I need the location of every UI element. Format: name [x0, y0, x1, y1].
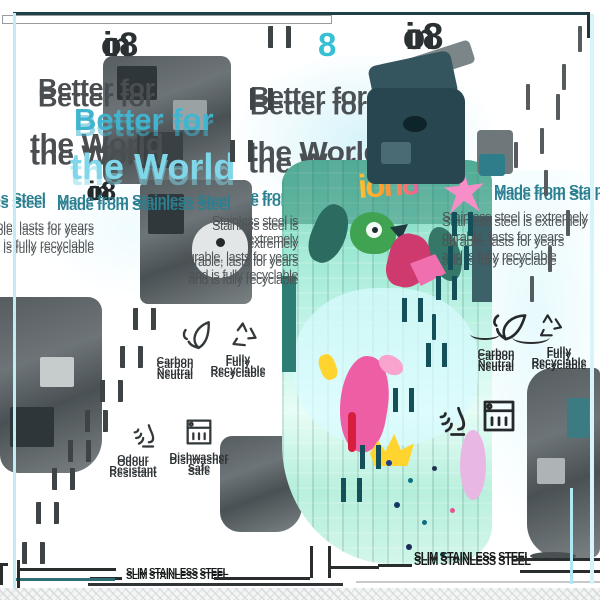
description-line: durable, lasts for years [180, 253, 298, 271]
brand-logo-ghost-right: ion8 [405, 16, 431, 58]
glitch-dash [36, 502, 59, 524]
description-line: Stainless steel is extremely [180, 217, 298, 253]
glitch-dash [530, 276, 534, 302]
product-image: Better for the World Made from Stainless… [0, 0, 600, 600]
glitch-dash [268, 26, 291, 48]
bottle-dot-3 [432, 466, 437, 471]
feature-label-recyclable: Fully Recyclable [526, 350, 592, 373]
arc-mark [470, 328, 500, 340]
banner-line-long [88, 583, 343, 586]
glitch-dash [100, 380, 123, 402]
glitch-dash [230, 140, 253, 162]
dishwasher-icon [182, 414, 216, 450]
banner-line [516, 558, 600, 561]
ghost-bottle-light2 [40, 357, 74, 387]
glitch-dash [85, 410, 108, 432]
banner-text-left: SLIM STAINLESS STEEL [126, 570, 228, 582]
leaf-icon [176, 316, 219, 357]
glitch-dash [52, 468, 75, 490]
glitch-dash [526, 84, 530, 110]
ghost-bottle-teal-bit [567, 398, 589, 438]
feature-label-carbon: Carbon Neutral [466, 352, 526, 375]
glitch-dash [544, 170, 548, 196]
banner-text-right: SLIM STAINLESS STEEL [414, 556, 530, 568]
subtitle-edge-fragment: Made from Stainless Steel [0, 196, 45, 212]
banner-line-teal [15, 578, 115, 581]
cap-highlight [381, 142, 411, 164]
banner-line-grey [356, 581, 600, 583]
ghost-bottle-shade4 [10, 407, 54, 447]
glitch-dash [133, 308, 156, 330]
cap-body [367, 88, 465, 184]
bottle-dot-7 [406, 544, 412, 550]
banner-line [214, 577, 310, 580]
bottle-dot-4 [394, 502, 400, 508]
glitch-dash [250, 88, 273, 110]
feature-label-odour-ghost: Odour Resistant [102, 458, 164, 481]
banner-line [378, 564, 412, 567]
corner-mark [0, 563, 3, 585]
nose-icon [129, 420, 163, 456]
corner-mark [328, 546, 331, 578]
corner-mark [331, 566, 379, 569]
bottle-dot-5 [422, 520, 427, 525]
recycle-icon [224, 316, 261, 353]
glitch-dash [22, 542, 45, 564]
corner-mark [20, 568, 116, 571]
glitch-dash [448, 246, 469, 270]
frame-right-cyan [590, 14, 594, 584]
ghost-bottle-light3 [537, 458, 565, 484]
glitch-dash [402, 298, 423, 322]
bottle-dot-2 [408, 478, 413, 483]
main-title-line1: Better for [74, 102, 214, 138]
bottle-teal-edge [282, 276, 296, 372]
glitch-dash [452, 212, 473, 236]
glitch-dash [393, 388, 414, 412]
feature-label-carbon-ghost: Carbon Neutral [146, 360, 204, 383]
glitch-dash [540, 128, 544, 154]
glitch-dash [341, 478, 362, 502]
brand-logo-ghost-left: ion8 [103, 26, 127, 65]
feature-label-recyclable-ghost: Fully Recyclable [206, 358, 270, 381]
bottle-cap [345, 46, 525, 186]
glitch-dash [566, 210, 570, 236]
frame-right-tick [587, 12, 590, 38]
nose-icon [434, 402, 476, 446]
corner-mark [17, 560, 20, 588]
frame-left-cyan [13, 13, 16, 588]
glitch-dash [562, 64, 566, 90]
cap-side-teal [479, 154, 505, 176]
glitch-dash [556, 94, 560, 120]
bottle-dot-6 [450, 508, 455, 513]
glitch-dash [432, 314, 436, 340]
main-title-line2: the World [70, 146, 235, 188]
description-center: Stainless steel is extremely durable, la… [180, 217, 298, 290]
description-line: and is fully recyclable [180, 271, 298, 289]
arc-mark [512, 330, 550, 344]
bottom-hatch-strip [0, 588, 600, 600]
frame-inner-box [2, 15, 332, 24]
parrot-pupil [372, 227, 378, 233]
glitch-dash [436, 276, 457, 300]
glitch-dash [426, 343, 447, 367]
bottle-dot-1 [386, 460, 392, 466]
glitch-dash [120, 346, 143, 368]
dishwasher-icon [478, 394, 520, 438]
corner-mark [310, 546, 313, 578]
feature-label-dishwasher-ghost: Dishwasher Safe [164, 456, 234, 479]
glitch-dash [548, 246, 552, 272]
glitch-dash [360, 445, 381, 469]
brand-logo-eight: 8 [318, 26, 336, 64]
parrot2-red-streak [348, 412, 356, 452]
frame-inner-cyan [570, 488, 573, 584]
glitch-dash [68, 440, 91, 462]
banner-line [520, 570, 600, 573]
cap-spout [403, 116, 427, 132]
glitch-dash [578, 26, 582, 52]
glitch-dash [514, 142, 518, 168]
subtitle-left: Made from Stainless Steel [57, 198, 230, 214]
